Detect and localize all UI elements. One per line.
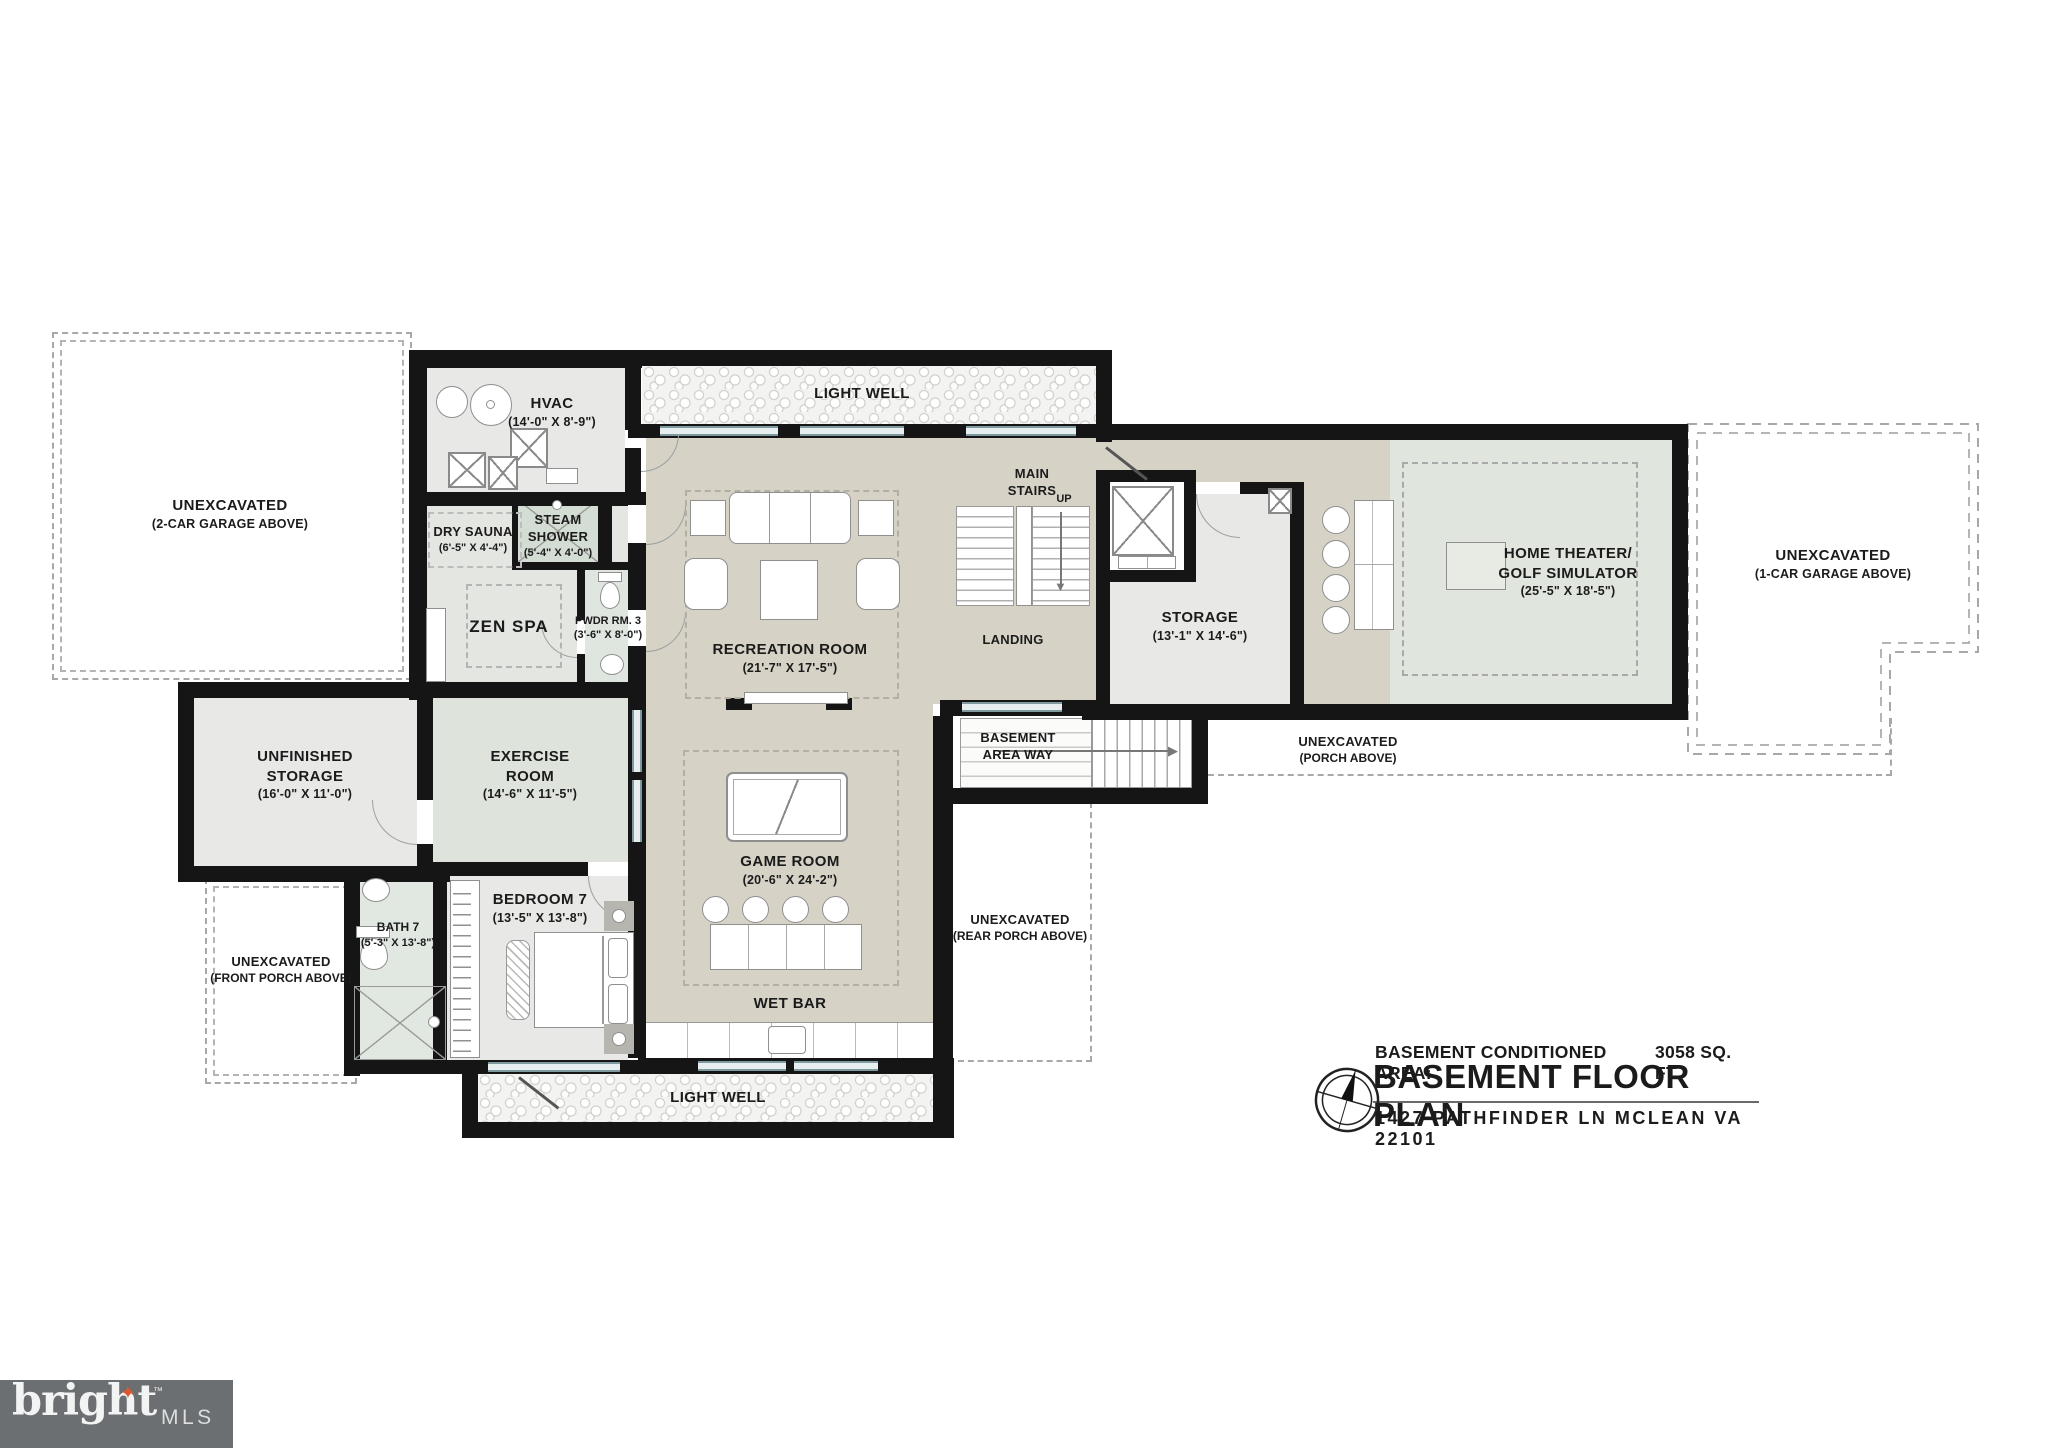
room-dims: (25'-5" X 18'-5") — [1498, 583, 1637, 599]
room-name: STORAGE — [257, 767, 353, 787]
hvac-cabinet — [546, 468, 578, 484]
wall-segment — [462, 1074, 478, 1124]
brightmls-logo: bright ✦ ™ MLS — [0, 1380, 233, 1448]
compass-icon — [1313, 1066, 1381, 1134]
side-table — [690, 500, 726, 536]
room-label-zen-spa: ZEN SPA — [469, 616, 548, 638]
bar-stool — [1322, 606, 1350, 634]
room-dims: (21'-7" X 17'-5") — [713, 660, 868, 676]
title-underline — [1373, 1101, 1759, 1103]
room-name: EXERCISE — [483, 747, 577, 767]
window — [794, 1061, 878, 1071]
side-table — [858, 500, 894, 536]
room-name: DRY SAUNA — [433, 524, 512, 541]
room-dims: (14'-6" X 11'-5") — [483, 786, 577, 802]
room-name: UNEXCAVATED — [1298, 734, 1397, 751]
property-address: 1427 PATHFINDER LN MCLEAN VA 22101 — [1375, 1108, 1759, 1150]
wall-segment — [512, 562, 598, 570]
wall-segment — [178, 866, 450, 882]
room-label-rear-porch: UNEXCAVATED (REAR PORCH ABOVE) — [953, 912, 1087, 944]
room-label-bath7: BATH 7 (5'-3" X 13'-8") — [361, 920, 435, 950]
room-name: LANDING — [982, 632, 1043, 649]
speaker-ring — [612, 909, 626, 923]
elevator-sill — [1118, 556, 1176, 569]
room-name: UNEXCAVATED — [152, 496, 308, 516]
room-name: STORAGE — [1153, 608, 1248, 628]
room-name: MAIN — [1008, 466, 1057, 483]
stairs-direction-line — [1060, 512, 1062, 584]
room-label-recreation: RECREATION ROOM (21'-7" X 17'-5") — [713, 640, 868, 676]
arrow-down-icon: ▼ — [1054, 580, 1067, 593]
pillow — [608, 984, 628, 1024]
room-subtext: (FRONT PORCH ABOVE) — [210, 971, 352, 987]
door-opening — [628, 505, 646, 543]
room-label-bedroom7: BEDROOM 7 (13'-5" X 13'-8") — [493, 890, 588, 926]
room-subtext: (REAR PORCH ABOVE) — [953, 929, 1087, 945]
bar-stool — [822, 896, 849, 923]
room-name: SHOWER — [524, 529, 592, 546]
window — [966, 426, 1076, 436]
wall-segment — [577, 682, 639, 690]
room-name: PWDR RM. 3 — [574, 614, 642, 628]
star-icon: ✦ — [120, 1382, 136, 1405]
room-label-unexcavated-2car: UNEXCAVATED (2-CAR GARAGE ABOVE) — [152, 496, 308, 532]
room-dims: (14'-0" X 8'-9") — [508, 414, 596, 430]
room-label-landing: LANDING — [982, 632, 1043, 649]
room-label-home-theater: HOME THEATER/ GOLF SIMULATOR (25'-5" X 1… — [1498, 544, 1637, 599]
zen-spa-bench — [426, 608, 446, 682]
room-label-basement-areaway: BASEMENT AREA WAY — [980, 730, 1055, 764]
room-dims: (16'-0" X 11'-0") — [257, 786, 353, 802]
room-label-front-porch: UNEXCAVATED (FRONT PORCH ABOVE) — [210, 954, 352, 986]
main-stairs-rail — [1016, 506, 1032, 606]
room-name: GOLF SIMULATOR — [1498, 564, 1637, 584]
room-label-exercise: EXERCISE ROOM (14'-6" X 11'-5") — [483, 747, 577, 802]
room-label-powder-room: PWDR RM. 3 (3'-6" X 8'-0") — [574, 614, 642, 643]
shower-head — [552, 500, 562, 510]
room-label-porch-above: UNEXCAVATED (PORCH ABOVE) — [1298, 734, 1397, 766]
room-name: UNEXCAVATED — [210, 954, 352, 971]
room-label-unfinished-storage: UNFINISHED STORAGE (16'-0" X 11'-0") — [257, 747, 353, 802]
wall-segment — [933, 716, 953, 1058]
room-name: STEAM — [524, 512, 592, 529]
pillow — [608, 938, 628, 978]
wall-segment — [640, 350, 1112, 366]
wall-segment — [933, 1058, 954, 1124]
window — [962, 702, 1062, 712]
unexcavated-1car-garage-outline — [1680, 416, 1990, 766]
room-dims: (3'-6" X 8'-0") — [574, 628, 642, 642]
room-subtext: (PORCH ABOVE) — [1298, 751, 1397, 767]
room-name: HOME THEATER/ — [1498, 544, 1637, 564]
room-name: BASEMENT — [980, 730, 1055, 747]
theater-screen — [1446, 542, 1506, 590]
wet-bar-sink — [768, 1026, 806, 1054]
room-name: UNEXCAVATED — [1755, 546, 1911, 566]
speaker-ring — [612, 1032, 626, 1046]
bar-stool — [1322, 506, 1350, 534]
room-label-unexcavated-1car: UNEXCAVATED (1-CAR GARAGE ABOVE) — [1755, 546, 1911, 582]
sink — [600, 654, 624, 675]
room-dims: (5'-3" X 13'-8") — [361, 936, 435, 950]
theater-bar-counter — [1354, 500, 1394, 630]
basement-floor-plan: ▼ ▶ — [0, 0, 2048, 1448]
wall-segment — [1082, 704, 1688, 720]
wall-segment — [625, 448, 641, 494]
wall-segment — [409, 350, 642, 368]
window — [698, 1061, 786, 1071]
label-up: UP — [1056, 492, 1071, 506]
bar-stool — [782, 896, 809, 923]
room-name: UNFINISHED — [257, 747, 353, 767]
wall-segment — [409, 350, 427, 700]
room-name: STAIRS — [1008, 483, 1057, 500]
armchair — [684, 558, 728, 610]
room-name: UNEXCAVATED — [953, 912, 1087, 929]
window — [488, 1062, 620, 1072]
room-name: HVAC — [508, 394, 596, 414]
tank-valve — [486, 400, 495, 409]
room-dims: (20'-6" X 24'-2") — [740, 872, 839, 888]
bedroom-bench — [506, 940, 530, 1020]
window — [632, 710, 642, 772]
wall-segment — [1672, 424, 1688, 720]
door-opening — [417, 800, 433, 844]
sink — [362, 878, 390, 902]
main-stairs-left-flight — [956, 506, 1014, 606]
wall-segment — [638, 1058, 938, 1074]
room-label-light-well-bottom: LIGHT WELL — [670, 1088, 766, 1108]
room-label-dry-sauna: DRY SAUNA (6'-5" X 4'-4") — [433, 524, 512, 555]
room-dims: (13'-5" X 13'-8") — [493, 910, 588, 926]
room-subtext: (1-CAR GARAGE ABOVE) — [1755, 566, 1911, 582]
room-name: WET BAR — [754, 994, 827, 1014]
room-dims: (6'-5" X 4'-4") — [433, 541, 512, 555]
room-label-main-stairs: MAIN STAIRS — [1008, 466, 1057, 500]
media-console — [744, 692, 848, 704]
bar-stool — [742, 896, 769, 923]
closet-hangers — [453, 884, 471, 1054]
wall-segment — [178, 682, 194, 882]
sofa — [729, 492, 851, 544]
room-name: BATH 7 — [361, 920, 435, 936]
wall-segment — [462, 1122, 954, 1138]
storage-equipment-box — [1268, 488, 1292, 514]
bar-stool — [1322, 540, 1350, 568]
door-opening — [1196, 482, 1240, 494]
shower-head — [428, 1016, 440, 1028]
room-subtext: (2-CAR GARAGE ABOVE) — [152, 516, 308, 532]
wall-segment — [946, 788, 1208, 804]
bar-stool — [1322, 574, 1350, 602]
room-name: LIGHT WELL — [814, 384, 910, 404]
door-opening — [588, 862, 628, 876]
toilet-tank — [598, 572, 622, 582]
stairs-up-label: UP — [1056, 492, 1071, 506]
armchair — [856, 558, 900, 610]
wall-segment — [598, 492, 612, 570]
room-label-game-room: GAME ROOM (20'-6" X 24'-2") — [740, 852, 839, 888]
bed-linen-line — [602, 936, 604, 1024]
pool-table — [726, 772, 848, 842]
wall-segment — [625, 358, 641, 430]
room-name: ZEN SPA — [469, 616, 548, 638]
game-bar-counter — [710, 924, 862, 970]
room-name: AREA WAY — [980, 747, 1055, 764]
wall-segment — [1096, 424, 1688, 440]
wall-segment — [1108, 570, 1196, 582]
water-tank — [436, 386, 468, 418]
room-name: ROOM — [483, 767, 577, 787]
room-name: LIGHT WELL — [670, 1088, 766, 1108]
room-dims: (5'-4" X 4'-0") — [524, 546, 592, 560]
wall-segment — [178, 682, 646, 698]
wall-segment — [1192, 716, 1208, 804]
room-dims: (13'-1" X 14'-6") — [1153, 628, 1248, 644]
elevator-cab — [1112, 486, 1174, 556]
hvac-unit — [488, 456, 518, 490]
room-name: RECREATION ROOM — [713, 640, 868, 660]
room-name: GAME ROOM — [740, 852, 839, 872]
toilet-bowl — [600, 582, 620, 609]
wall-segment — [1290, 482, 1304, 720]
room-label-hvac: HVAC (14'-0" X 8'-9") — [508, 394, 596, 430]
trademark-symbol: ™ — [153, 1386, 163, 1397]
room-label-light-well-top: LIGHT WELL — [814, 384, 910, 404]
window — [800, 426, 904, 436]
coffee-table — [760, 560, 818, 620]
room-label-storage: STORAGE (13'-1" X 14'-6") — [1153, 608, 1248, 644]
window — [632, 780, 642, 842]
room-label-steam-shower: STEAM SHOWER (5'-4" X 4'-0") — [524, 512, 592, 560]
bar-stool — [702, 896, 729, 923]
room-label-wet-bar: WET BAR — [754, 994, 827, 1014]
arrow-right-icon: ▶ — [1168, 744, 1178, 757]
logo-suffix-text: MLS — [161, 1406, 215, 1430]
wall-segment — [1096, 470, 1110, 720]
room-name: BEDROOM 7 — [493, 890, 588, 910]
hvac-unit — [448, 452, 486, 488]
